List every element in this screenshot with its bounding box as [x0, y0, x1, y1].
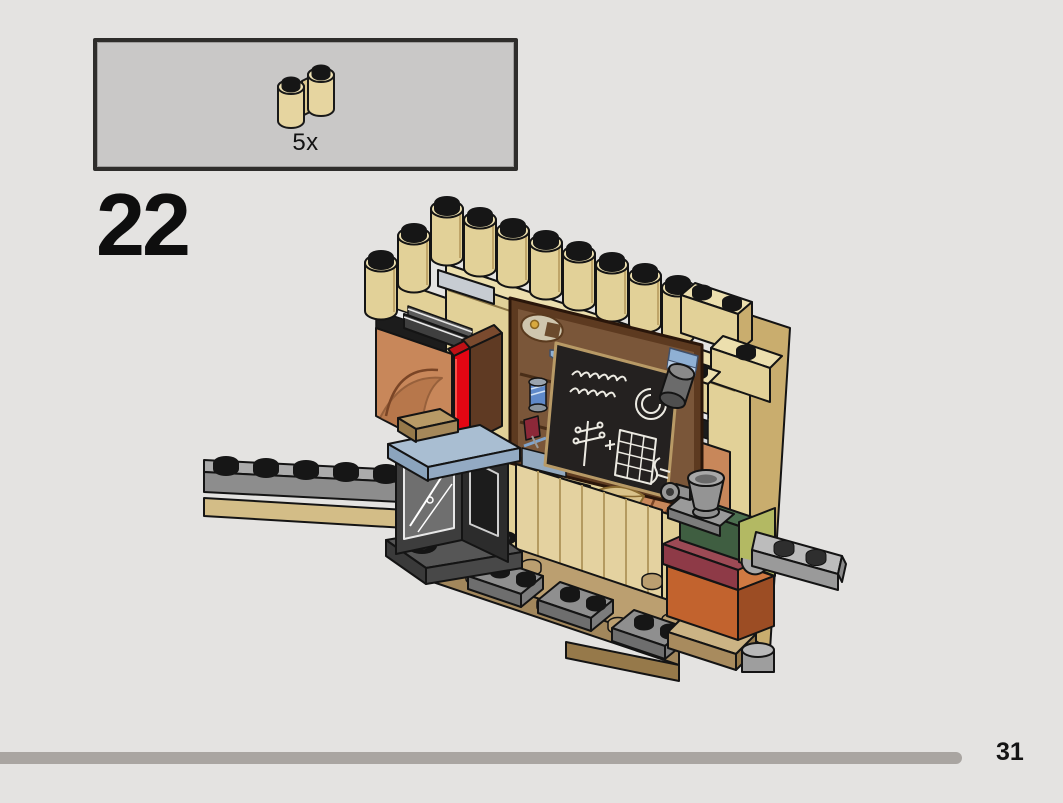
goblet-piece	[688, 470, 724, 518]
progress-bar	[0, 752, 962, 764]
step-number: 22	[96, 181, 188, 269]
thread-spool	[529, 378, 547, 412]
page-number: 31	[996, 738, 1024, 767]
left-gray-plate	[204, 456, 406, 528]
part-quantity-label: 5x	[292, 129, 318, 157]
instruction-page: 5x 22	[0, 0, 1063, 803]
part-preview: 5x	[256, 55, 356, 157]
parts-callout-box: 5x	[93, 38, 518, 171]
round-brick-piece	[742, 643, 774, 672]
brick-1x2-log-icon	[256, 55, 356, 133]
build-illustration	[190, 178, 870, 688]
